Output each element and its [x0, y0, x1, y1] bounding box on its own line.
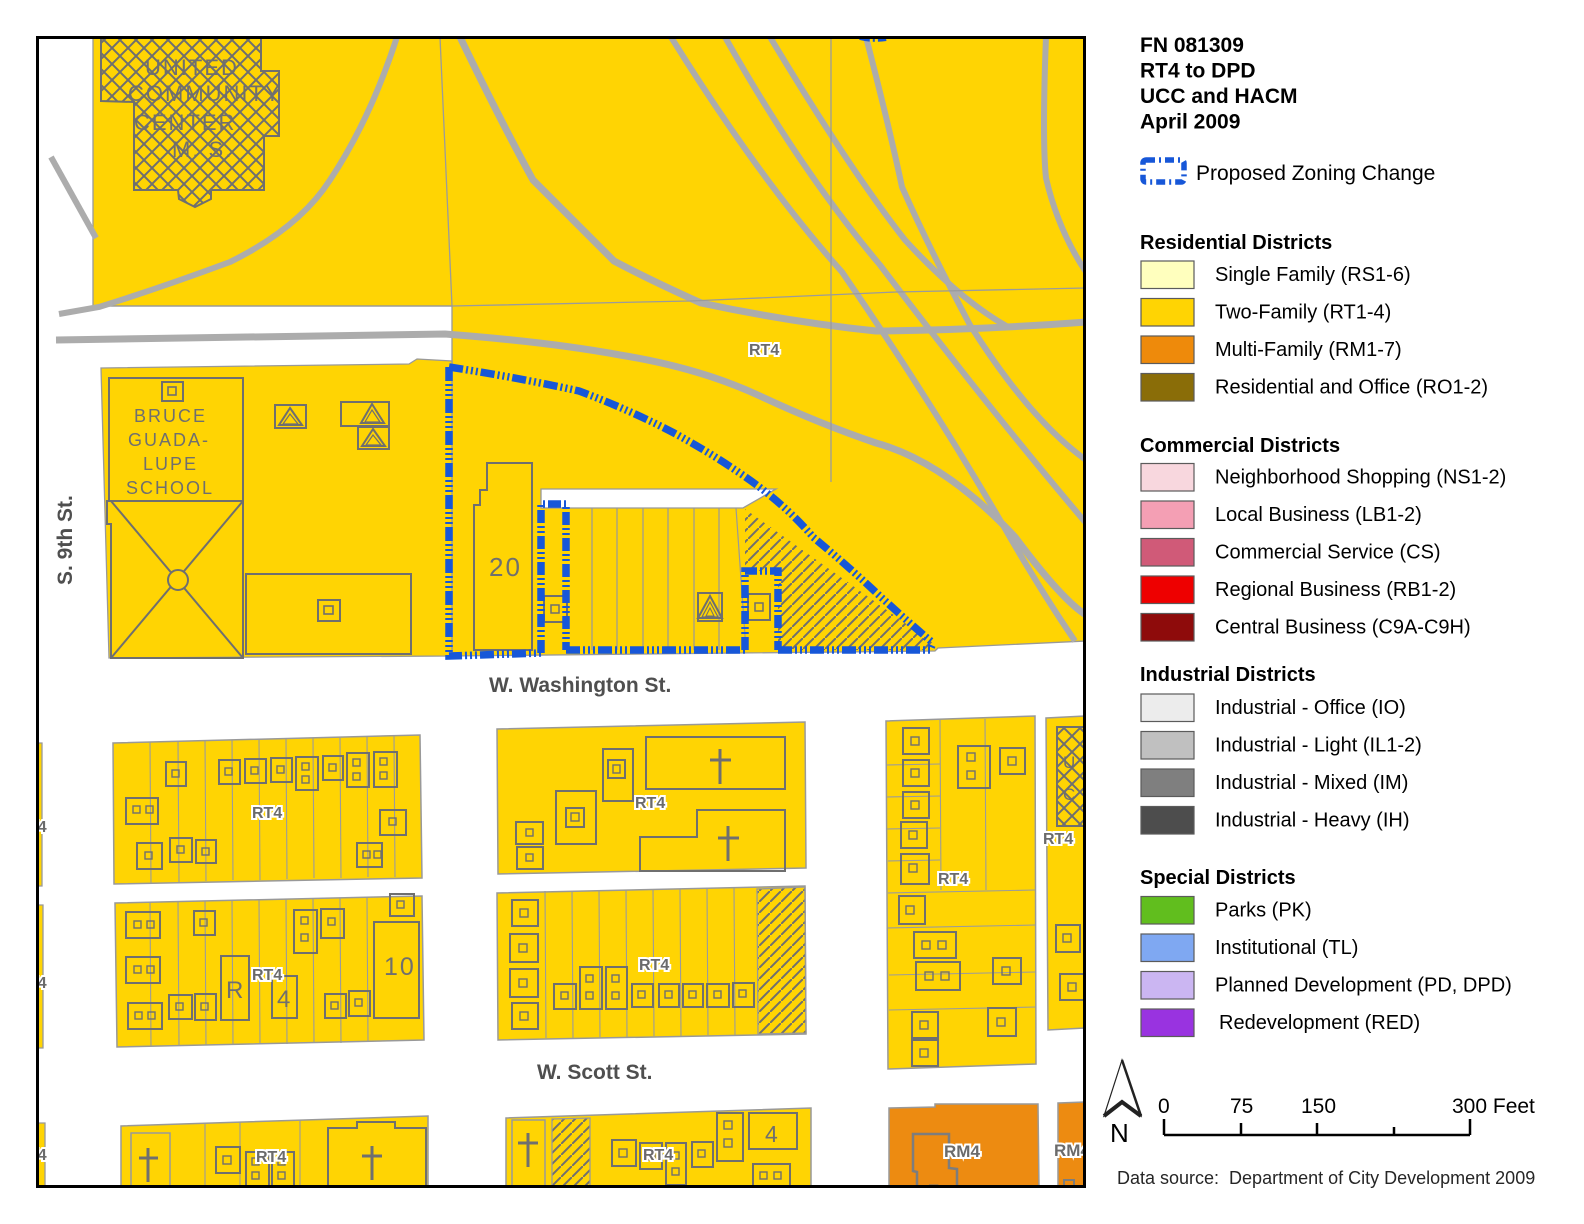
- svg-text:20: 20: [489, 552, 522, 582]
- svg-text:Regional Business (RB1-2): Regional Business (RB1-2): [1215, 579, 1456, 601]
- svg-text:RT4: RT4: [749, 342, 779, 359]
- svg-text:4: 4: [765, 1121, 780, 1147]
- svg-text:RT4: RT4: [1043, 831, 1073, 848]
- svg-text:Special Districts: Special Districts: [1140, 867, 1296, 889]
- svg-text:10: 10: [384, 953, 416, 981]
- svg-text:UCC and HACM: UCC and HACM: [1140, 85, 1298, 108]
- svg-text:R: R: [226, 977, 245, 1004]
- svg-text:RT4: RT4: [252, 967, 282, 984]
- svg-text:W. Scott St.: W. Scott St.: [537, 1061, 653, 1084]
- svg-text:LUPE: LUPE: [143, 454, 198, 474]
- svg-text:Commercial Districts: Commercial Districts: [1140, 435, 1340, 457]
- svg-text:S. 9th St.: S. 9th St.: [54, 495, 77, 585]
- svg-text:4: 4: [277, 986, 292, 1013]
- svg-text:Single Family (RS1-6): Single Family (RS1-6): [1215, 264, 1411, 286]
- svg-text:RT4: RT4: [252, 805, 282, 822]
- svg-text:Residential and Office (RO1-2): Residential and Office (RO1-2): [1215, 377, 1488, 399]
- svg-text:RT4: RT4: [643, 1147, 673, 1164]
- svg-text:Residential Districts: Residential Districts: [1140, 232, 1332, 254]
- svg-text:CENTER: CENTER: [134, 110, 236, 135]
- svg-text:April 2009: April 2009: [1140, 111, 1240, 134]
- svg-text:RT4: RT4: [635, 795, 665, 812]
- svg-text:RT4: RT4: [938, 871, 968, 888]
- svg-text:Commercial Service (CS): Commercial Service (CS): [1215, 542, 1441, 564]
- svg-text:Industrial - Office (IO): Industrial - Office (IO): [1215, 697, 1406, 719]
- svg-text:150: 150: [1301, 1095, 1336, 1118]
- svg-text:Redevelopment (RED): Redevelopment (RED): [1219, 1012, 1420, 1034]
- svg-text:W. Washington St.: W. Washington St.: [489, 674, 671, 697]
- svg-text:0: 0: [1158, 1095, 1170, 1118]
- svg-text:Local Business (LB1-2): Local Business (LB1-2): [1215, 504, 1422, 526]
- svg-text:Institutional (TL): Institutional (TL): [1215, 937, 1358, 959]
- svg-text:Parks (PK): Parks (PK): [1215, 900, 1312, 922]
- svg-text:Industrial - Heavy (IH): Industrial - Heavy (IH): [1215, 810, 1410, 832]
- svg-text:UNITED: UNITED: [145, 55, 239, 80]
- svg-text:Planned Development (PD, DPD): Planned Development (PD, DPD): [1215, 975, 1512, 997]
- svg-text:GUADA-: GUADA-: [128, 430, 210, 450]
- svg-text:Industrial - Mixed (IM): Industrial - Mixed (IM): [1215, 772, 1408, 794]
- svg-text:RT4: RT4: [639, 957, 669, 974]
- svg-text:RT4 to DPD: RT4 to DPD: [1140, 60, 1256, 83]
- svg-text:N: N: [1110, 1118, 1129, 1148]
- svg-text:SCHOOL: SCHOOL: [126, 478, 214, 498]
- svg-text:Two-Family (RT1-4): Two-Family (RT1-4): [1215, 302, 1391, 324]
- svg-text:Proposed Zoning Change: Proposed Zoning Change: [1196, 162, 1435, 185]
- svg-text:Neighborhood Shopping (NS1-2): Neighborhood Shopping (NS1-2): [1215, 467, 1506, 489]
- svg-text:RM4: RM4: [944, 1142, 980, 1161]
- svg-text:Multi-Family (RM1-7): Multi-Family (RM1-7): [1215, 339, 1402, 361]
- svg-text:FN 081309: FN 081309: [1140, 34, 1244, 57]
- svg-text:300 Feet: 300 Feet: [1452, 1095, 1535, 1118]
- svg-text:BRUCE: BRUCE: [134, 406, 207, 426]
- svg-text:U: U: [1063, 753, 1077, 772]
- svg-text:COMMUNITY: COMMUNITY: [128, 81, 282, 106]
- svg-text:Industrial - Light (IL1-2): Industrial - Light (IL1-2): [1215, 735, 1422, 757]
- svg-text:RT4: RT4: [256, 1149, 286, 1166]
- svg-text:75: 75: [1230, 1095, 1253, 1118]
- svg-text:Central Business (C9A-C9H): Central Business (C9A-C9H): [1215, 617, 1471, 639]
- svg-text:M. S.: M. S.: [172, 137, 233, 162]
- svg-text:Data source: Department of Ci: Data source: Department of City Developm…: [1117, 1168, 1535, 1188]
- svg-text:C: C: [1063, 785, 1077, 804]
- svg-text:Industrial Districts: Industrial Districts: [1140, 664, 1316, 686]
